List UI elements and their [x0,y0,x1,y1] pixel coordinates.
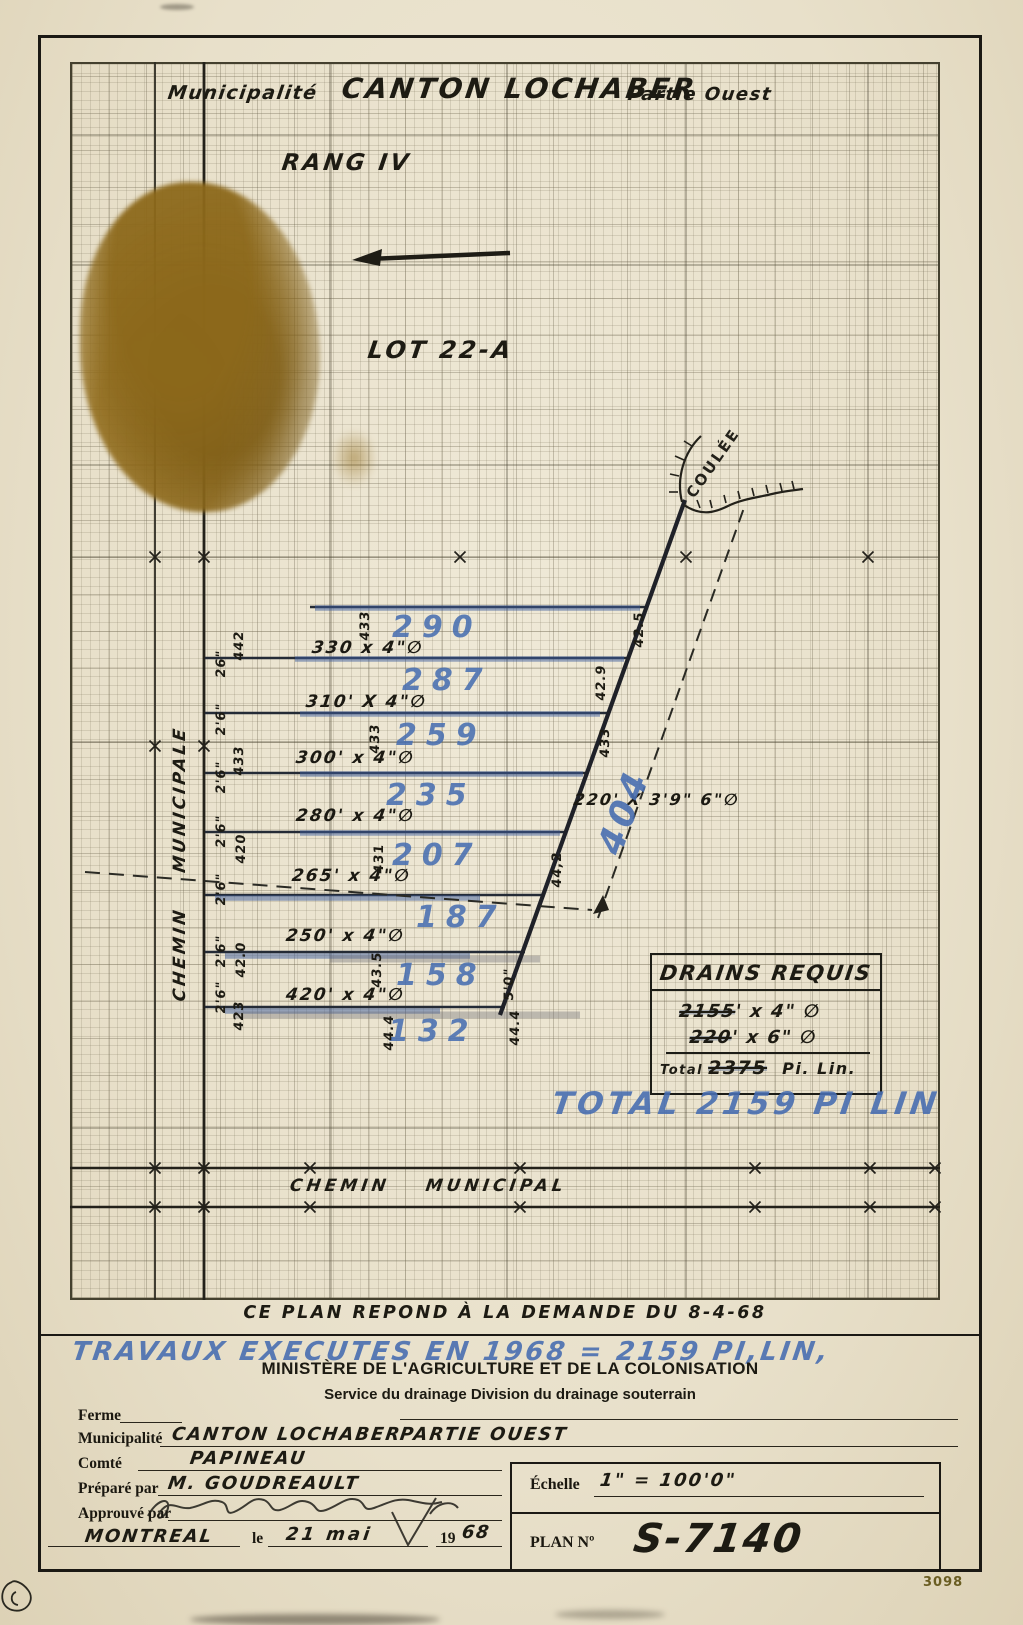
title-municipalite-label: Municipalité [166,82,319,104]
drain2-right-elev: 42.9 [594,664,609,702]
drain6-spec: 250' x 4"∅ [285,926,407,946]
drain8-flow: 132 [388,1014,478,1049]
municipalite-value: CANTON LOCHABER [171,1424,403,1445]
drain7-left-elev: 42.0 [234,941,249,979]
north-arrow [352,249,510,266]
drains-requis-total-row: Total 2375 Pi. Lin. [652,1054,880,1079]
main-drain-spec: 220' X 3'9" 6"∅ [572,790,741,809]
drain3-left-depth: 2'6" [214,702,229,736]
date-underline [268,1546,428,1547]
echelle-value: 1" = 100'0" [599,1470,738,1491]
drains-requis-line2: 220' x 6" ∅ [650,1022,882,1048]
ferme-label: Ferme [78,1407,121,1425]
prepare-label: Préparé par [78,1480,158,1498]
drain7-spec: 420' x 4"∅ [285,985,407,1005]
drain4-spec: 280' x 4"∅ [295,806,417,826]
drain1-mid-elev: 433 [358,610,373,642]
coulee-symbol [669,436,803,512]
drains-requis-title: DRAINS REQUIS [658,961,873,985]
drains-requis-total-qty: 2375 [708,1057,767,1079]
ferme-underline-long [400,1419,958,1420]
drains-requis-line1: 2155' x 4" ∅ [650,991,882,1022]
comte-underline [138,1470,502,1471]
drains-requis-total-unit: Pi. Lin. [782,1059,856,1078]
drain2-spec: 310' X 4"∅ [305,692,429,712]
drain6-left-depth: 2'6" [214,872,229,906]
total-blue-note: TOTAL 2159 PI LIN [549,1086,942,1122]
drain3-mid-elev: 433 [368,723,383,755]
ferme-underline [120,1422,182,1423]
corner-doodle [2,1581,31,1610]
title-rang: RANG IV [280,150,413,176]
city-value: MONTREAL [84,1526,215,1547]
drain3-right-elev: 433 [598,727,613,759]
drain5-mid-elev: 431 [372,843,387,875]
year-value: 68 [461,1522,492,1543]
municipalite-underline [160,1446,958,1447]
drain4-left-depth: 2'6" [214,760,229,794]
municipalite-label: Municipalité [78,1430,162,1448]
ministry-subtitle: Service du drainage Division du drainage… [38,1386,982,1403]
drain8-mid-elev: 44.4 [382,1014,397,1052]
scale-plan-box: Échelle 1" = 100'0" PLAN Nº S-7140 [510,1462,941,1572]
le-label: le [252,1530,263,1548]
prepare-underline [158,1495,502,1496]
ministry-title-text: MINISTÈRE DE L'AGRICULTURE ET DE LA COLO… [261,1359,758,1378]
left-road-lines [155,62,204,1300]
approuve-label: Approuvé par [78,1505,171,1523]
drain2-left-elev: 442 [232,630,247,662]
approuve-underline [168,1520,502,1521]
main-drain-line [500,500,685,1015]
demande-note-text: CE PLAN REPOND À LA DEMANDE DU 8-4-68 [243,1303,766,1323]
drain3-spec: 300' x 4"∅ [295,748,417,768]
drain7-mid-elev: 43.5 [370,951,385,989]
drain8-left-elev: 423 [232,1000,247,1032]
drain1-right-elev: 42.5 [632,611,647,649]
comte-label: Comté [78,1455,122,1473]
drain8-right-depth: 5'0" [502,967,517,1001]
title-lot: LOT 22-A [366,336,515,364]
corner-print-number: 3098 [923,1575,963,1590]
scanned-drainage-plan: COULÉE Municipalité CANTON LOCHABER Part… [0,0,1023,1625]
comte-value: PAPINEAU [189,1448,308,1469]
drains-requis-line1-qty: 2155 [678,1001,737,1022]
title-part: Partie Ouest [627,84,774,105]
drain6-flow: 187 [416,900,506,935]
year-prefix: 19 [440,1530,456,1548]
flow-arrowhead [593,895,609,914]
drain5-left-depth: 2'6" [214,814,229,848]
date-value: 21 mai [285,1524,374,1545]
drain7-left-depth: 2'6" [214,934,229,968]
drains-requis-box: DRAINS REQUIS 2155' x 4" ∅ 220' x 6" ∅ T… [650,953,882,1095]
plan-no-label: PLAN Nº [530,1534,594,1552]
echelle-underline [594,1496,924,1497]
drain5-spec: 265' x 4"∅ [291,866,413,886]
scalebox-divider [512,1512,939,1514]
drain4-left-elev: 433 [232,745,247,777]
drains-requis-line2-spec: ' x 6" ∅ [730,1027,818,1048]
demande-note: CE PLAN REPOND À LA DEMANDE DU 8-4-68 [70,1303,940,1323]
plan-linework: COULÉE [0,0,1023,1625]
drain7-flow: 158 [396,958,486,993]
drain2-left-depth: 26" [214,649,229,678]
left-road-label: CHEMIN MUNICIPALE [170,725,190,1003]
ministry-subtitle-text: Service du drainage Division du drainage… [324,1386,696,1403]
bottom-road-label: CHEMIN MUNICIPAL [289,1176,568,1196]
drain5-right-elev: 44,2 [550,851,565,889]
drain8-left-depth: 2'6" [214,980,229,1014]
coulee-label: COULÉE [682,424,744,501]
drains-requis-total-label: Total [660,1063,703,1078]
ministry-title: MINISTÈRE DE L'AGRICULTURE ET DE LA COLO… [38,1359,982,1379]
section-divider [40,1334,981,1336]
prepare-value: M. GOUDREAULT [167,1473,361,1494]
echelle-label: Échelle [530,1476,580,1494]
municipalite-value2: PARTIE OUEST [399,1424,569,1445]
drains-requis-line2-qty: 220 [688,1027,733,1048]
drain5-left-elev: 420 [234,833,249,865]
drain8-right-elev: 44.4 [508,1009,523,1047]
plan-no-value: S-7140 [631,1516,806,1562]
drains-requis-line1-spec: ' x 4" ∅ [734,1001,822,1022]
